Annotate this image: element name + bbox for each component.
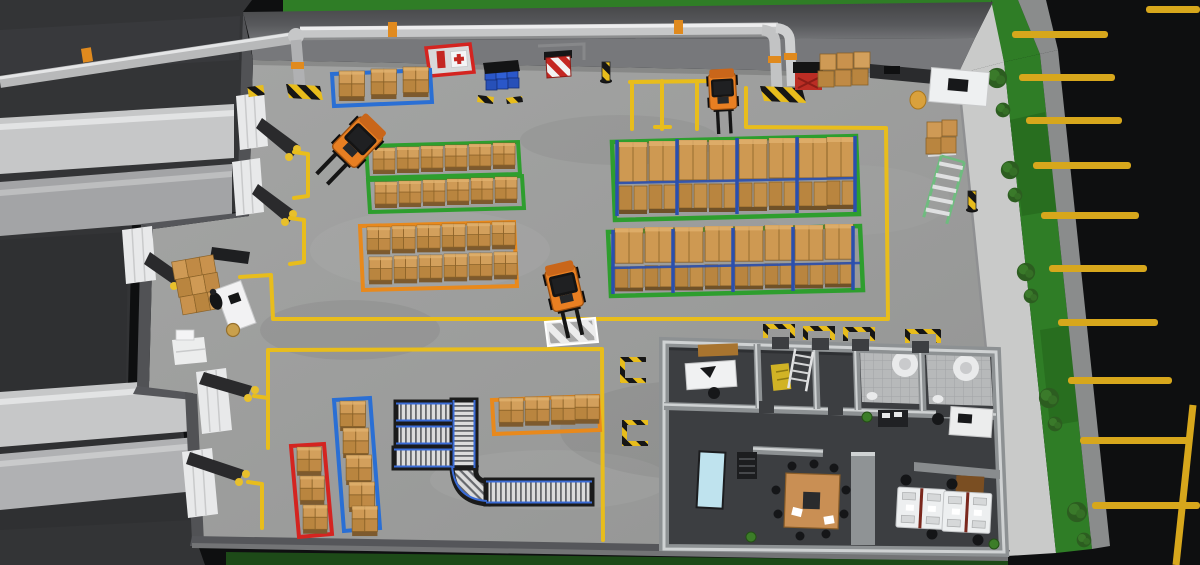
restroom-1 [860,350,920,404]
toilet-2 [933,395,944,403]
conveyor-belt-long [486,480,592,504]
door-gap-4 [912,341,929,353]
crosswalk-mat [548,321,595,344]
black-cabinet [878,410,908,427]
plant-3 [989,539,999,549]
warehouse-3d-render: 3D warehouse facility layout render [0,0,1200,565]
office-block [664,337,1004,552]
hazard-base-left-pipe [286,84,323,100]
restroom-2 [926,352,993,406]
small-box-stack-right [926,120,957,156]
first-aid-sign [450,50,467,67]
door-gap-2 [812,338,829,350]
blue-table [697,451,726,508]
hazard-bollard-2 [966,191,978,213]
stool [227,324,240,337]
desk-laptop [948,78,969,92]
door-gap-6 [828,403,843,415]
office-divider-wall [851,452,875,545]
door-gap-5 [759,401,774,413]
first-aid-station [426,44,474,76]
office-chair [708,387,720,399]
conveyor-belt-a [396,402,452,422]
toilet-1 [867,392,878,400]
plant-1 [862,412,872,422]
conveyor-belt-b [396,425,452,445]
fire-extinguisher [436,51,445,69]
conveyor-belt-c [394,448,452,468]
yellow-bag [910,91,926,109]
hazard-bollard-1 [600,62,612,84]
door-gap-1 [772,337,789,349]
office-shelf [698,343,738,356]
door-gap-3 [852,339,869,351]
conveyor-belt-vertical [452,400,476,468]
rack-zone-1 [612,136,859,220]
plant-2 [746,532,756,542]
warehouse-render-stage: 3D warehouse facility layout render [0,0,1200,565]
shelf-box [956,475,985,492]
